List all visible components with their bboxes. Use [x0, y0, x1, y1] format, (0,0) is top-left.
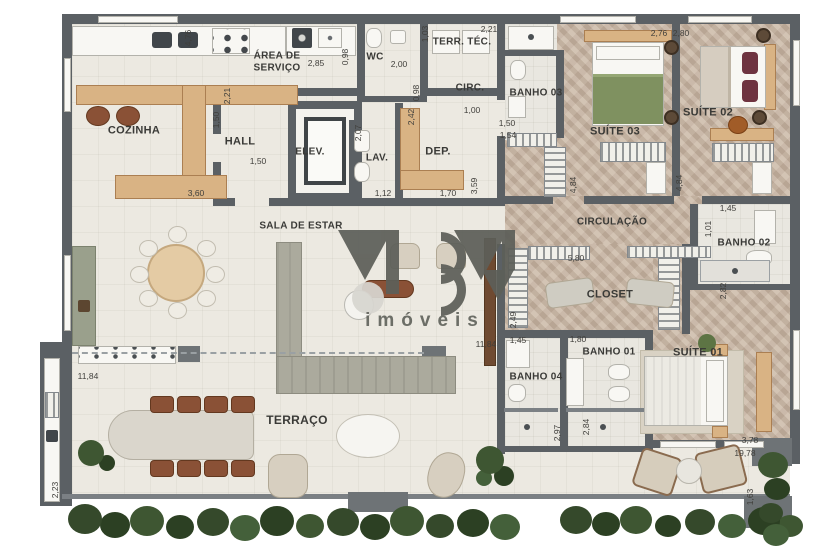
dimension-label: 1,50: [499, 118, 516, 128]
wall-banho02-bottom: [690, 284, 790, 290]
room-label: CIRCULAÇÃO: [577, 216, 647, 228]
brand-name: imóveis: [365, 310, 485, 332]
banho01-vanity: [566, 358, 584, 406]
terrace-chair: [231, 460, 255, 477]
room-label: ÁREA DE SERVIÇO: [254, 51, 301, 74]
room-label: DEP.: [425, 146, 450, 159]
terrace-bar-block: [178, 346, 200, 362]
dimension-label: 1,50: [211, 112, 221, 129]
dimension-label: 2,42: [406, 109, 416, 126]
suite03-pillows: [596, 46, 660, 60]
stove: [212, 28, 250, 54]
banho01-bidet: [608, 386, 630, 402]
wall-circ-top-b: [584, 196, 674, 204]
post-terrace-center: [348, 492, 408, 512]
wc-sink: [390, 30, 406, 44]
banho03-sink: [508, 96, 526, 118]
dimension-label: 3,60: [188, 188, 205, 198]
bbq-grill: [45, 392, 59, 418]
window-left-a: [64, 58, 71, 112]
suite02-wardrobe-end: [752, 162, 772, 194]
dimension-label: 1,63: [745, 489, 755, 506]
terrace-chair: [231, 396, 255, 413]
dimension-label: 1,12: [375, 188, 392, 198]
room-label: TERRAÇO: [266, 414, 327, 428]
dimension-label: 1,45: [510, 335, 527, 345]
banho02-shower-head: [732, 268, 738, 274]
room-label: CIRC.: [456, 82, 485, 94]
suite01-nightstand-2: [712, 426, 728, 438]
suite02-blanket: [701, 47, 731, 107]
terrace-chair: [150, 396, 174, 413]
dimension-label: 19,78: [734, 448, 755, 458]
dimension-label: 1,00: [464, 105, 481, 115]
dining-chair: [139, 240, 158, 257]
wall-banho03-top: [502, 50, 562, 56]
wall-spine-a: [497, 24, 505, 100]
bbq-sink: [46, 430, 58, 442]
room-label: BANHO 04: [510, 371, 563, 383]
laundry-tank: [318, 28, 342, 48]
room-label: BANHO 01: [583, 346, 636, 358]
room-label: WC: [366, 51, 383, 63]
sofa-main: [276, 356, 456, 394]
suite02-wardrobe: [712, 143, 774, 162]
dining-chair: [197, 240, 216, 257]
dimension-label: 11,84: [476, 339, 497, 349]
dimension-label: 1,50: [250, 156, 267, 166]
dimension-label: 1,70: [440, 188, 457, 198]
lav-toilet: [354, 162, 370, 182]
hedge-bottom-right: [560, 506, 592, 534]
room-label: COZINHA: [108, 125, 160, 138]
window-top-kitchen: [98, 16, 178, 23]
dimension-label: 4,84: [568, 177, 578, 194]
dimension-label: 5,80: [568, 253, 585, 263]
dimension-label: 2,07: [353, 125, 363, 142]
wall-sala-top-a: [213, 198, 235, 206]
dimension-label: 1,80: [570, 334, 587, 344]
dimension-label: 2,84: [581, 419, 591, 436]
suite02-lamp-1: [756, 28, 771, 43]
suite03-lamp-2: [664, 110, 679, 125]
dimension-label: 2,23: [50, 482, 60, 499]
suite03-wardrobe-end: [646, 162, 666, 194]
sideboard-decor: [78, 300, 90, 312]
suite01-bench: [756, 352, 772, 432]
dimension-label: 2,21: [481, 24, 498, 34]
closet-wardrobe-top-2: [627, 246, 711, 258]
window-left-b: [64, 255, 71, 331]
room-label: SALA DE ESTAR: [259, 220, 342, 232]
suite02-pillow-1: [742, 52, 758, 74]
terrace-chair: [150, 460, 174, 477]
wc-toilet: [366, 28, 382, 48]
dep-shelf-bottom: [400, 170, 464, 190]
dimension-label: 1,03: [420, 26, 430, 43]
wall-circ-top-a: [505, 196, 553, 204]
window-top-suite02: [688, 16, 752, 23]
banho04-shower-divider: [504, 408, 558, 412]
dimension-label: 2,97: [552, 425, 562, 442]
terrace-chair: [177, 460, 201, 477]
sideboard-left: [72, 246, 96, 346]
suite03-wardrobe: [600, 142, 666, 162]
washer: [292, 28, 312, 48]
room-label: HALL: [225, 136, 256, 149]
banho03-shower-head: [528, 34, 534, 40]
hedge-right: [758, 452, 788, 478]
wall-circ-top-c: [702, 196, 800, 204]
dining-chair: [130, 266, 149, 283]
dimension-label: 3,78: [742, 435, 759, 445]
monogram-left-stem: [386, 230, 399, 294]
dimension-label: 2,49: [508, 312, 518, 329]
monogram-right-small-triangle: [482, 270, 514, 300]
dimension-label: 2,00: [391, 59, 408, 69]
lounge-side-table: [676, 458, 702, 484]
window-suite01-a: [660, 441, 716, 448]
room-label: BANHO 02: [718, 237, 771, 249]
brand-watermark: imóveis: [330, 226, 520, 326]
kitchen-counter-l-bottom: [115, 175, 227, 199]
banho04-shower-head: [524, 424, 530, 430]
dimension-label: 4,84: [674, 175, 684, 192]
window-top-suite03: [560, 16, 636, 23]
dimension-label: 1,45: [720, 203, 737, 213]
monogram-left-triangle: [338, 230, 392, 280]
window-right-b: [793, 330, 800, 410]
kitchen-sink-1: [152, 32, 172, 48]
room-label: CLOSET: [587, 289, 633, 302]
floor-plan: imóveis COZINHAÁREA DE SERVIÇOHALLELEV.W…: [0, 0, 838, 554]
stool-1: [86, 106, 110, 126]
suite02-pillow-2: [742, 80, 758, 102]
dining-chair: [197, 290, 216, 307]
suite01-blanket: [645, 357, 701, 425]
dining-chair: [168, 302, 187, 319]
room-label: TERR. TÉC.: [433, 36, 492, 48]
banho03-wardrobe-v: [544, 147, 566, 197]
dining-chair: [206, 266, 225, 283]
suite03-blanket: [593, 74, 663, 124]
plant-cluster-1: [476, 446, 504, 474]
dimension-label: 2,21: [222, 88, 232, 105]
stool-2: [116, 106, 140, 126]
room-label: SUÍTE 01: [673, 347, 723, 360]
dimension-label: 1,54: [500, 130, 517, 140]
banho01-shower-head: [600, 424, 606, 430]
suite01-pillows: [706, 360, 724, 422]
dimension-label: 2,76: [651, 28, 668, 38]
wall-spine-b: [497, 136, 505, 204]
room-label: SUÍTE 02: [683, 107, 733, 120]
monogram-right-stem: [502, 230, 515, 270]
wall-wc-left-a: [357, 24, 365, 88]
dining-chair: [168, 226, 187, 243]
dimension-label: 0,98: [411, 85, 421, 102]
window-right-a: [793, 40, 800, 106]
dimension-label: 3,59: [469, 178, 479, 195]
suite02-lamp-2: [752, 110, 767, 125]
hedge-bottom: [68, 504, 102, 534]
banho04-toilet: [508, 384, 526, 402]
dimension-label: 2,85: [308, 58, 325, 68]
room-label: LAV.: [366, 152, 388, 164]
dimension-label: 11,84: [78, 371, 99, 381]
terrace-pouf: [268, 454, 308, 498]
banho03-toilet: [510, 60, 526, 80]
wall-terrace-edge: [62, 494, 790, 499]
banho01-toilet: [608, 364, 630, 380]
terrace-bar: [78, 346, 176, 364]
banho01-shower-divider: [566, 408, 644, 412]
room-label: ELEV.: [295, 146, 324, 158]
room-label: BANHO 03: [510, 87, 563, 99]
dimension-label: 2,82: [718, 283, 728, 300]
dining-chair: [139, 290, 158, 307]
room-label: SUÍTE 03: [590, 126, 640, 139]
terrace-chair: [177, 396, 201, 413]
terrace-chair: [204, 460, 228, 477]
wall-sala-top-b: [269, 198, 505, 206]
dimension-label: 0,98: [340, 49, 350, 66]
egg-chair: [336, 414, 400, 458]
dimension-label: 4,76: [183, 30, 193, 47]
suite03-lamp-1: [664, 40, 679, 55]
terrace-table-marble: [108, 410, 254, 460]
terrace-chair: [204, 396, 228, 413]
dimension-label: 1,01: [703, 221, 713, 238]
dimension-label: 2,80: [673, 28, 690, 38]
sala-terraco-boundary: [72, 352, 424, 354]
plant-left-terrace: [78, 440, 104, 466]
wall-banho-bottom: [497, 446, 653, 452]
